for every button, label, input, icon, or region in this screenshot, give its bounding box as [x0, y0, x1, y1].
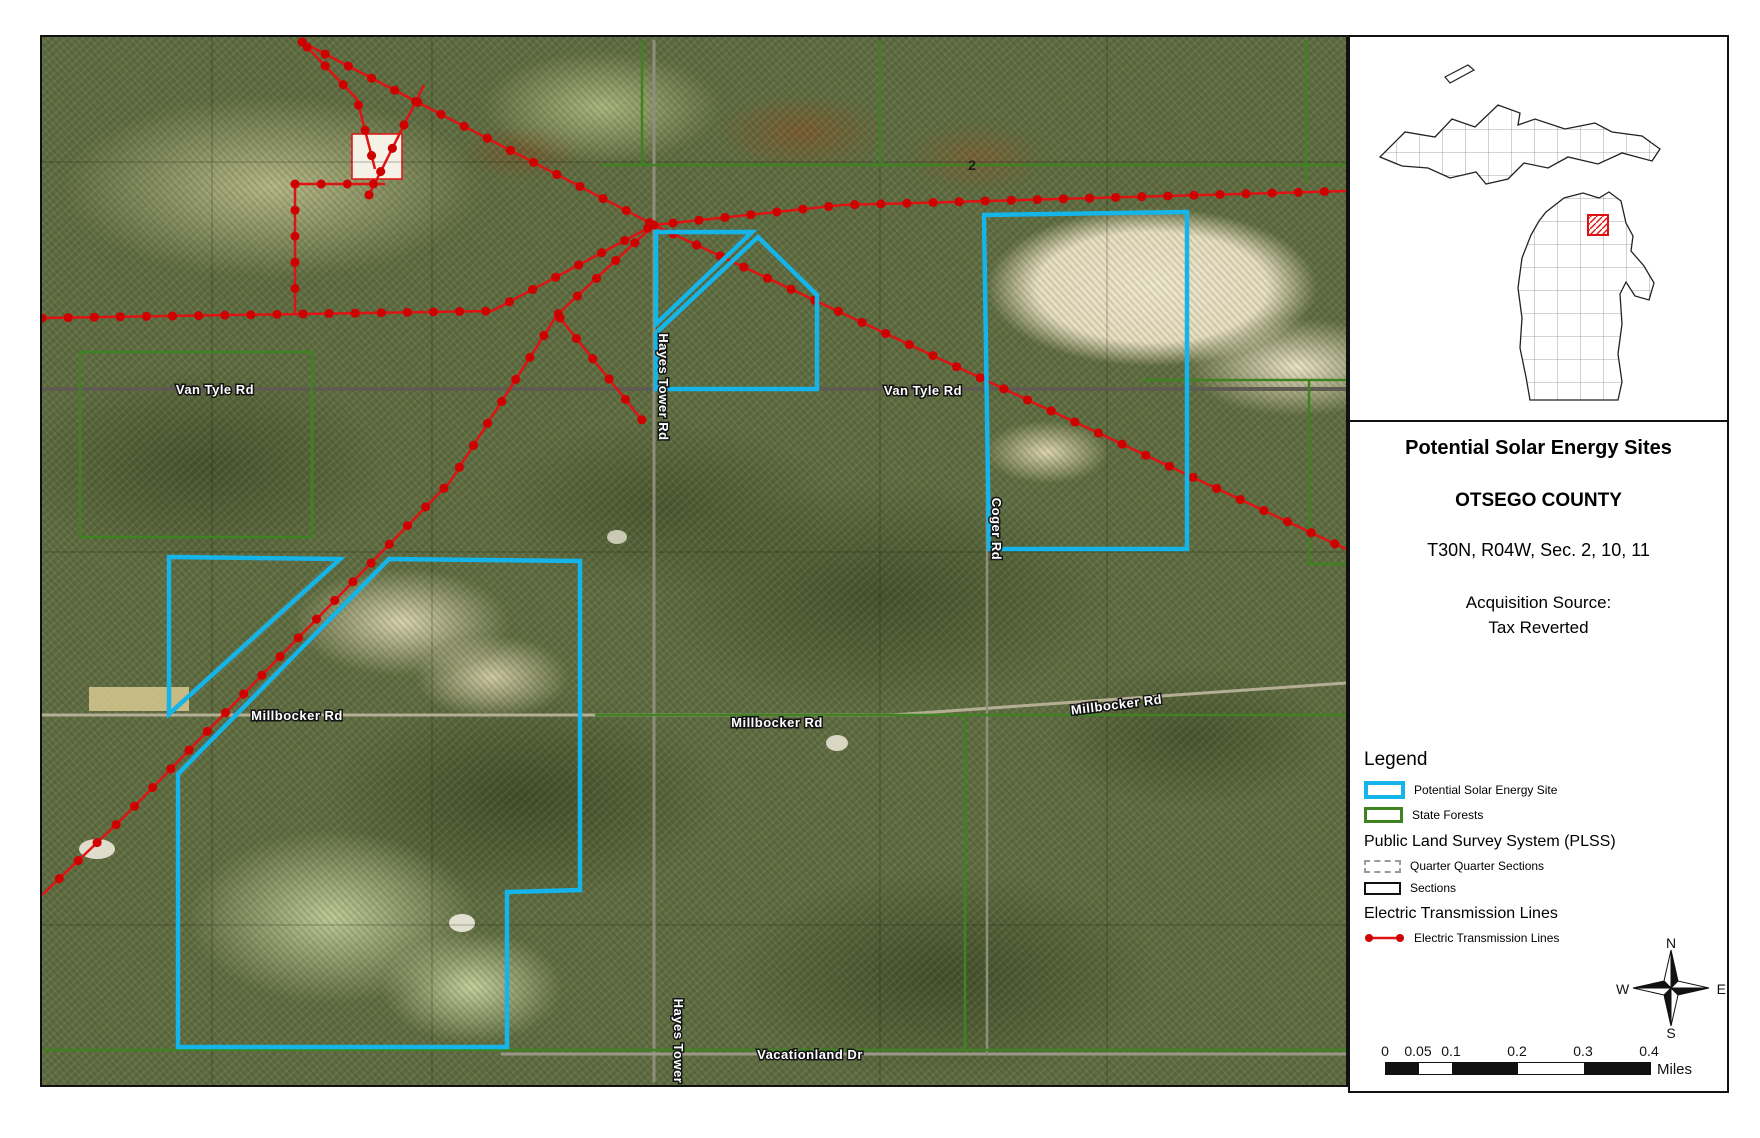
scale-segment	[1386, 1063, 1419, 1074]
state-forest-boundaries	[42, 41, 1346, 1050]
legend-item-label: State Forests	[1412, 808, 1483, 822]
compass-east-label: E	[1717, 981, 1726, 997]
legend: Legend Potential Solar Energy Site State…	[1364, 749, 1716, 953]
map-document: Van Tyle Rd Van Tyle Rd Hayes Tower Rd C…	[0, 0, 1760, 1138]
scale-segment	[1419, 1063, 1452, 1074]
scale-segment	[1452, 1063, 1518, 1074]
legend-item-label: Potential Solar Energy Site	[1414, 783, 1557, 797]
legend-item-solar-site: Potential Solar Energy Site	[1364, 781, 1716, 799]
solar-site-swatch-icon	[1364, 781, 1405, 799]
scale-tick: 0.1	[1441, 1043, 1460, 1059]
county-title: OTSEGO COUNTY	[1350, 490, 1727, 512]
legend-item-label: Sections	[1410, 881, 1456, 895]
road-labels: Van Tyle Rd Van Tyle Rd Hayes Tower Rd C…	[176, 157, 1163, 1083]
clearing-patches	[79, 134, 848, 932]
transmission-lines	[42, 42, 1346, 895]
road-label-van-tyle-east: Van Tyle Rd	[884, 383, 962, 398]
road-label-vacationland: Vacationland Dr	[757, 1047, 863, 1062]
road-label-hayes-tower-south: Hayes Tower	[671, 999, 686, 1084]
compass-west-label: W	[1616, 981, 1629, 997]
scale-segment	[1584, 1063, 1650, 1074]
road-label-coger-rd: Coger Rd	[989, 498, 1004, 561]
road-label-hayes-tower-rd: Hayes Tower Rd	[656, 333, 671, 440]
plss-header: Public Land Survey System (PLSS)	[1364, 833, 1716, 851]
plss-section-grid	[42, 37, 1346, 1085]
lower-peninsula-outline	[1518, 192, 1654, 400]
scale-tick: 0.2	[1507, 1043, 1526, 1059]
solar-site-north-triangle	[656, 232, 752, 324]
road-label-millbocker-center: Millbocker Rd	[731, 715, 823, 730]
scale-tick-labels: 0 0.05 0.1 0.2 0.3 0.4	[1371, 1043, 1731, 1060]
road-label-millbocker-west: Millbocker Rd	[251, 708, 343, 723]
legend-item-label: Quarter Quarter Sections	[1410, 859, 1544, 873]
scale-unit-label: Miles	[1657, 1061, 1692, 1078]
state-forest-swatch-icon	[1364, 807, 1403, 823]
compass-north-label: N	[1666, 935, 1676, 951]
transmission-line-swatch-icon	[1364, 932, 1405, 944]
section-number-label: 2	[968, 157, 976, 173]
road-label-van-tyle-west: Van Tyle Rd	[176, 382, 254, 397]
acquisition-source-label: Acquisition Source:	[1350, 593, 1727, 613]
acquisition-source-value: Tax Reverted	[1350, 618, 1727, 638]
scale-tick: 0.05	[1404, 1043, 1431, 1059]
legend-header: Legend	[1364, 749, 1716, 771]
scale-bar-segments	[1385, 1062, 1651, 1075]
map-feature-overlay: Van Tyle Rd Van Tyle Rd Hayes Tower Rd C…	[42, 37, 1346, 1085]
road-label-millbocker-east: Millbocker Rd	[1070, 691, 1163, 717]
title-block: Potential Solar Energy Sites OTSEGO COUN…	[1350, 429, 1727, 638]
michigan-map	[1350, 37, 1729, 418]
compass-rose: N E S W	[1616, 935, 1726, 1041]
scale-bar: 0 0.05 0.1 0.2 0.3 0.4 Miles	[1371, 1043, 1731, 1087]
scale-tick: 0	[1381, 1043, 1389, 1059]
legend-item-state-forests: State Forests	[1364, 807, 1716, 823]
map-title: Potential Solar Energy Sites	[1350, 437, 1727, 460]
solar-site-polygons	[169, 212, 1187, 1047]
etl-header: Electric Transmission Lines	[1364, 905, 1716, 923]
scale-tick: 0.4	[1639, 1043, 1658, 1059]
sections-swatch-icon	[1364, 882, 1401, 895]
scale-tick: 0.3	[1573, 1043, 1592, 1059]
compass-south-label: S	[1666, 1025, 1675, 1041]
quarter-quarter-swatch-icon	[1364, 860, 1401, 873]
isle-royale-outline	[1445, 65, 1474, 83]
scale-segment	[1518, 1063, 1584, 1074]
solar-site-southwest	[178, 559, 580, 1047]
michigan-locator-inset	[1350, 37, 1727, 422]
solar-site-north	[656, 237, 817, 389]
otsego-county-highlight	[1588, 215, 1608, 235]
legend-item-quarter-quarter-sections: Quarter Quarter Sections	[1364, 859, 1716, 873]
legend-item-label: Electric Transmission Lines	[1414, 931, 1559, 945]
map-sidebar: Potential Solar Energy Sites OTSEGO COUN…	[1348, 35, 1729, 1093]
legend-item-sections: Sections	[1364, 881, 1716, 895]
township-range-sections: T30N, R04W, Sec. 2, 10, 11	[1350, 540, 1727, 561]
map-canvas: Van Tyle Rd Van Tyle Rd Hayes Tower Rd C…	[40, 35, 1348, 1087]
upper-peninsula-outline	[1380, 105, 1660, 184]
